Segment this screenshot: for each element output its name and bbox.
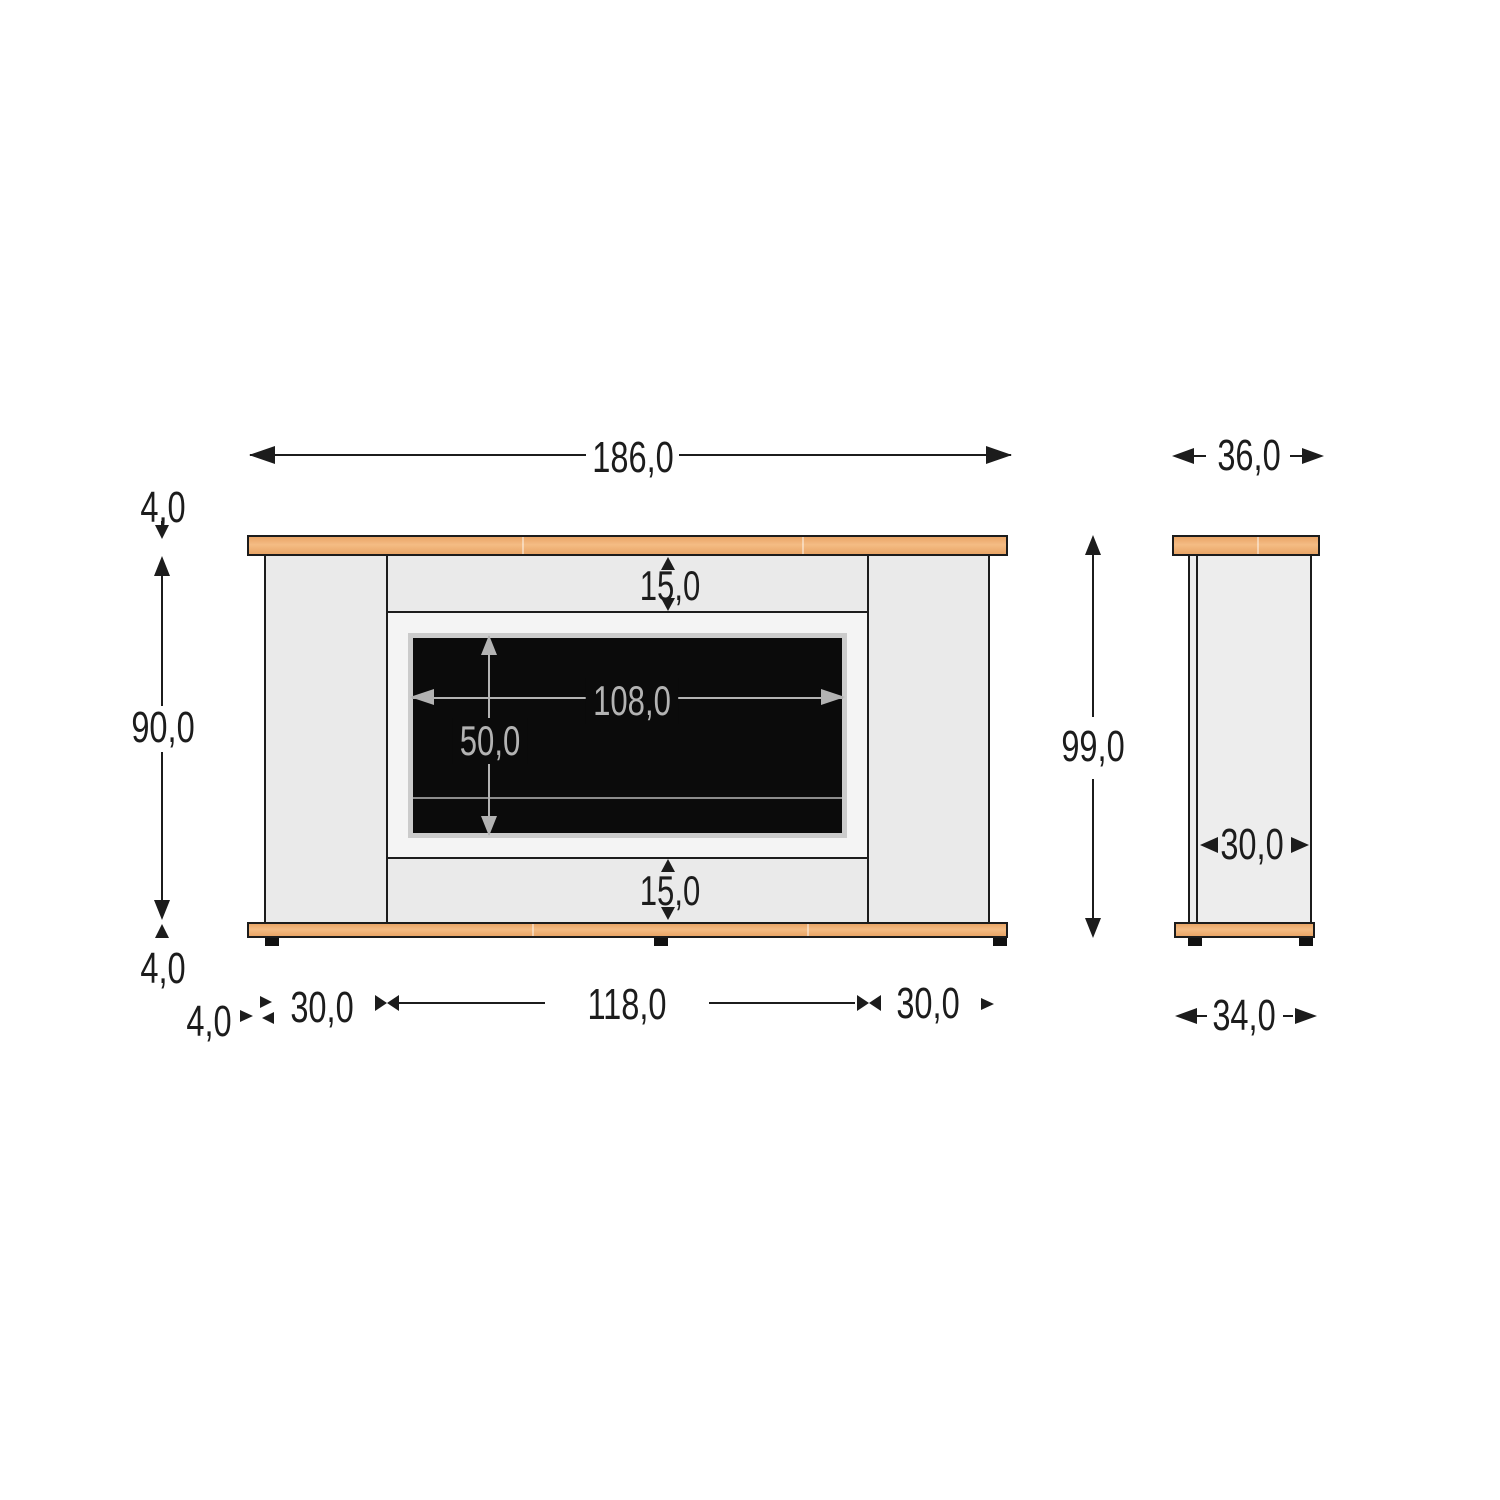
- dim-label-left-column-width: 30,0: [290, 986, 353, 1030]
- front-base-board: [247, 922, 1008, 938]
- bottom-rail-line: [388, 857, 867, 859]
- arrowhead-up-icon: [481, 635, 497, 655]
- arrowhead-up-icon: [154, 556, 170, 576]
- dim-line: [1194, 455, 1206, 457]
- arrowhead-right-icon: [857, 995, 869, 1011]
- arrowhead-left-icon: [249, 446, 275, 464]
- foot: [265, 938, 279, 946]
- foot: [654, 938, 668, 946]
- arrowhead-right-icon: [981, 998, 994, 1010]
- side-base-board: [1174, 922, 1315, 938]
- foot: [1299, 938, 1313, 946]
- arrowhead-left-icon: [262, 1012, 274, 1024]
- arrowhead-right-icon: [375, 995, 387, 1011]
- dim-label-screen-height: 50,0: [452, 718, 527, 764]
- arrowhead-down-icon: [155, 525, 169, 539]
- dim-line: [709, 1002, 855, 1004]
- wood-seam: [522, 537, 524, 554]
- dim-label-screen-width: 108,0: [586, 678, 679, 724]
- dim-label-overall-width: 186,0: [592, 436, 673, 480]
- arrowhead-down-icon: [661, 598, 675, 611]
- arrowhead-down-icon: [661, 907, 675, 920]
- side-top-board: [1172, 535, 1320, 556]
- fuel-bed-line: [413, 797, 842, 799]
- arrowhead-right-icon: [986, 446, 1012, 464]
- dim-label-top-board-thickness: 4,0: [140, 486, 185, 530]
- arrowhead-down-icon: [1085, 918, 1101, 938]
- dim-label-base-board-thickness: 4,0: [140, 947, 185, 991]
- arrowhead-right-icon: [240, 1010, 253, 1022]
- arrowhead-left-icon: [387, 995, 399, 1011]
- dim-label-base-depth: 34,0: [1212, 994, 1275, 1038]
- dim-line: [679, 454, 1011, 456]
- dim-line: [1283, 1015, 1293, 1017]
- dim-label-right-column-width: 30,0: [896, 982, 959, 1026]
- dim-line: [1197, 1015, 1207, 1017]
- dim-label-base-overhang: 4,0: [186, 1000, 231, 1044]
- arrowhead-down-icon: [154, 900, 170, 920]
- dim-label-body-depth: 30,0: [1220, 823, 1283, 867]
- dim-label-overall-height: 99,0: [1061, 725, 1124, 769]
- dim-label-opening-width: 118,0: [587, 983, 666, 1027]
- arrowhead-up-icon: [155, 924, 169, 938]
- arrowhead-left-icon: [1200, 837, 1218, 853]
- arrowhead-left-icon: [869, 995, 881, 1011]
- arrowhead-right-icon: [1291, 837, 1309, 853]
- dim-line: [1290, 455, 1302, 457]
- arrowhead-right-icon: [821, 689, 845, 705]
- dimension-drawing: 186,0 4,0 15,0 108,0 5: [0, 0, 1500, 1500]
- dim-label-top-depth: 36,0: [1217, 434, 1280, 478]
- arrowhead-right-icon: [1302, 448, 1324, 464]
- dim-line: [250, 454, 586, 456]
- wood-seam: [1257, 537, 1259, 554]
- arrowhead-down-icon: [481, 816, 497, 836]
- wood-seam: [802, 537, 804, 554]
- wood-seam: [807, 924, 809, 936]
- dim-line: [161, 752, 163, 900]
- front-top-board: [247, 535, 1008, 556]
- arrowhead-left-icon: [410, 689, 434, 705]
- arrowhead-right-icon: [260, 996, 272, 1008]
- arrowhead-right-icon: [1295, 1008, 1317, 1024]
- dim-line: [1092, 779, 1094, 918]
- foot: [1188, 938, 1202, 946]
- foot: [993, 938, 1007, 946]
- dim-label-body-height: 90,0: [131, 706, 194, 750]
- front-right-column-line: [867, 556, 869, 922]
- dim-line: [399, 1002, 545, 1004]
- wood-seam: [532, 924, 534, 936]
- arrowhead-left-icon: [1172, 448, 1194, 464]
- dim-line: [1092, 555, 1094, 717]
- dim-label-bottom-rail: 15,0: [640, 870, 700, 912]
- side-front-panel-line: [1196, 556, 1198, 922]
- arrowhead-left-icon: [1175, 1008, 1197, 1024]
- arrowhead-up-icon: [1085, 535, 1101, 555]
- dim-line: [161, 575, 163, 706]
